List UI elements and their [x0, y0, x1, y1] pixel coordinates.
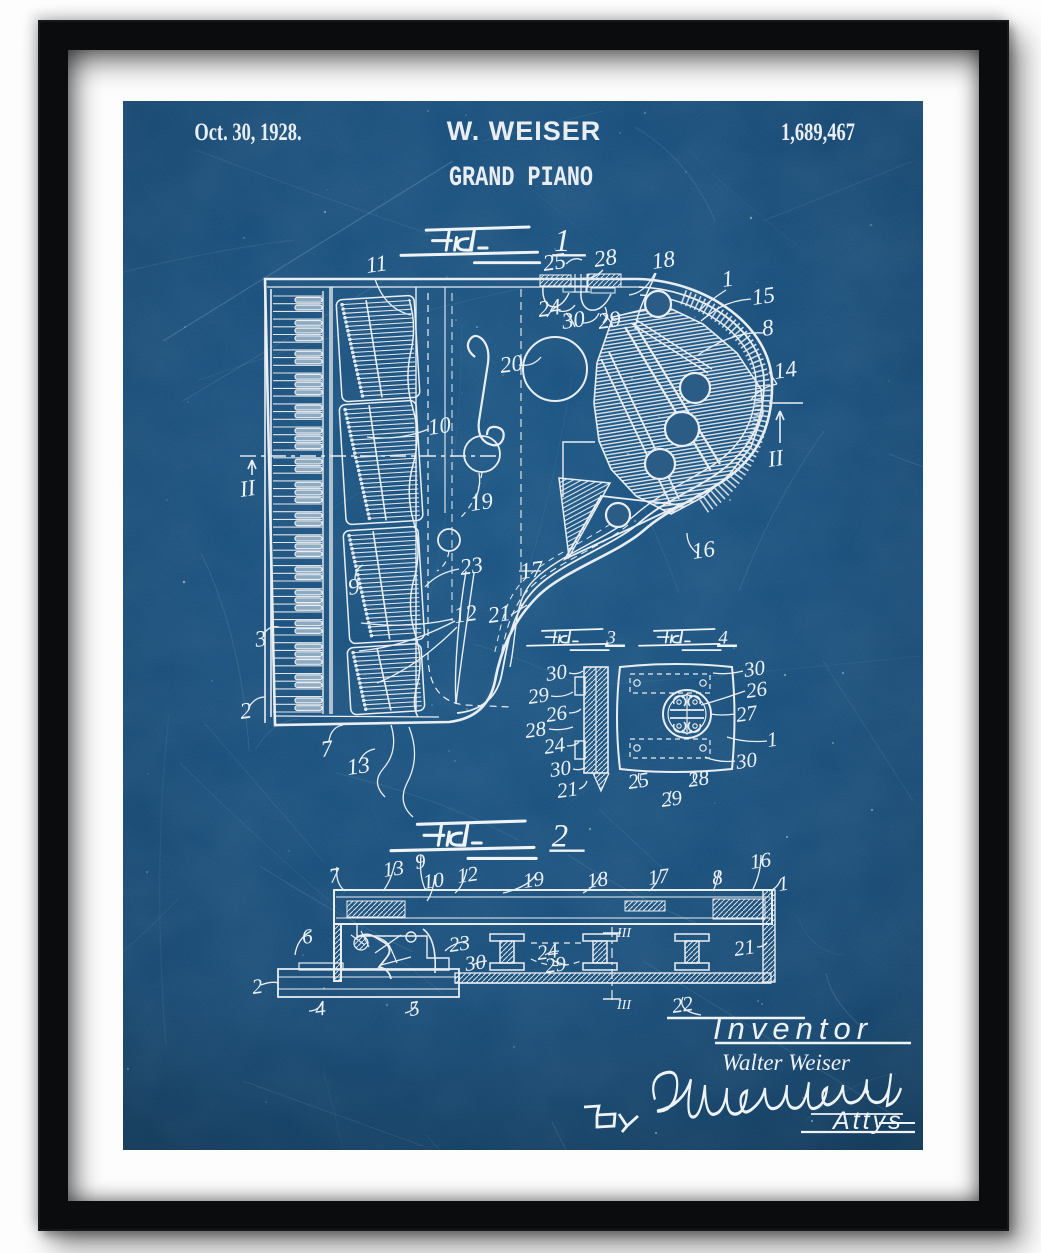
svg-text:23: 23: [458, 552, 484, 580]
svg-text:25: 25: [541, 248, 567, 276]
svg-text:26: 26: [744, 676, 769, 703]
svg-text:30: 30: [559, 306, 587, 334]
svg-text:W. WEISER: W. WEISER: [447, 116, 602, 146]
svg-text:2: 2: [552, 818, 569, 854]
svg-text:Attys: Attys: [831, 1107, 904, 1135]
svg-text:III: III: [616, 926, 632, 941]
svg-text:29: 29: [659, 785, 684, 812]
svg-text:Oct. 30, 1928.: Oct. 30, 1928.: [194, 117, 301, 145]
svg-text:30: 30: [543, 659, 569, 686]
svg-text:21: 21: [555, 776, 579, 803]
svg-text:19: 19: [468, 488, 495, 516]
svg-text:21: 21: [732, 934, 756, 961]
svg-text:GRAND PIANO: GRAND PIANO: [449, 162, 593, 194]
svg-text:14: 14: [772, 356, 798, 384]
svg-text:10: 10: [426, 412, 453, 440]
svg-text:12: 12: [455, 861, 480, 888]
svg-text:11: 11: [364, 250, 389, 278]
svg-text:29: 29: [596, 306, 623, 334]
svg-text:20: 20: [498, 350, 525, 378]
svg-text:24: 24: [542, 732, 567, 759]
svg-text:30: 30: [462, 949, 488, 976]
svg-text:28: 28: [686, 765, 711, 792]
svg-text:15: 15: [750, 282, 776, 310]
svg-text:21: 21: [486, 600, 512, 628]
svg-text:1,689,467: 1,689,467: [781, 117, 855, 145]
svg-text:19: 19: [521, 866, 546, 893]
svg-text:III: III: [616, 998, 632, 1013]
svg-text:26: 26: [544, 700, 569, 727]
svg-text:18: 18: [650, 246, 677, 274]
svg-text:13: 13: [345, 752, 371, 780]
svg-text:12: 12: [452, 600, 478, 628]
svg-text:24: 24: [536, 294, 562, 322]
svg-text:30: 30: [733, 747, 759, 774]
svg-text:28: 28: [592, 244, 619, 272]
svg-text:Walter Weiser: Walter Weiser: [722, 1050, 851, 1075]
svg-text:Inventor: Inventor: [713, 1011, 873, 1046]
